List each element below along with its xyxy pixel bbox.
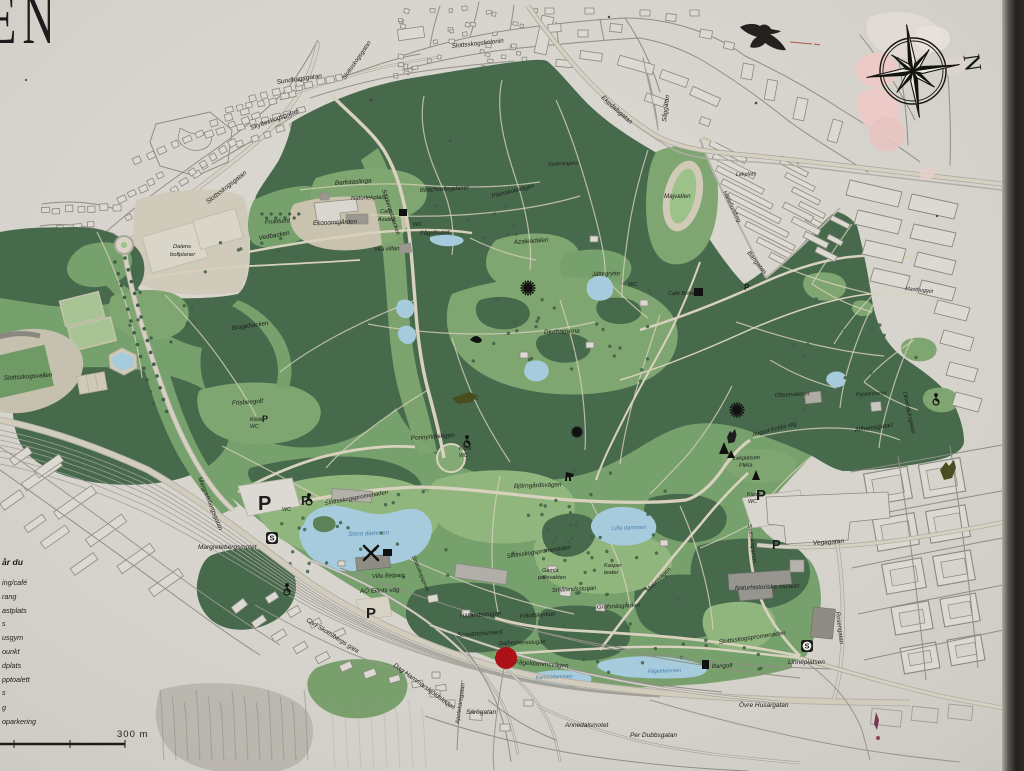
svg-text:WC: WC [628,282,638,288]
svg-text:rang: rang [2,592,16,601]
svg-text:Villa Belparc: Villa Belparc [372,573,405,580]
svg-text:S: S [804,642,809,651]
svg-text:Lilla dammen: Lilla dammen [612,525,647,532]
svg-text:Lekplats: Lekplats [736,171,757,178]
svg-text:astplats: astplats [2,606,27,615]
svg-text:Majvallen: Majvallen [664,193,691,200]
svg-text:Särögatan: Särögatan [466,709,496,716]
svg-text:WC: WC [282,507,291,513]
svg-text:Vita villan: Vita villan [374,246,400,253]
svg-text:s: s [2,619,6,628]
svg-text:Per Dubbsgatan: Per Dubbsgatan [630,732,677,739]
svg-text:Plikta: Plikta [739,463,753,469]
svg-text:S: S [269,534,274,543]
svg-text:bollplaner: bollplaner [170,252,196,258]
svg-text:P: P [262,414,268,424]
svg-text:s: s [2,688,6,697]
svg-text:Karlsrodammen: Karlsrodammen [536,674,573,681]
svg-text:Azalea: Azalea [377,217,395,223]
svg-text:Gamla: Gamla [542,568,558,574]
svg-text:ing/café: ing/café [2,578,27,587]
svg-text:usgym: usgym [2,633,23,642]
svg-text:WC: WC [250,424,259,430]
svg-text:oparkering: oparkering [2,717,36,726]
svg-text:Kasper: Kasper [604,563,623,569]
svg-text:Fågelhuset: Fågelhuset [420,229,450,237]
svg-text:P: P [744,283,750,292]
svg-text:Bangolf: Bangolf [712,663,734,670]
svg-text:WC: WC [459,453,468,459]
svg-text:300 m: 300 m [117,729,148,740]
svg-text:Övre Husargatan: Övre Husargatan [739,701,789,709]
svg-text:Fågeldammen: Fågeldammen [648,667,681,675]
svg-text:AO Elliots väg: AO Elliots väg [359,587,400,595]
svg-text:dplats: dplats [2,661,22,670]
svg-text:P: P [772,537,781,552]
svg-text:EN: EN [0,0,61,59]
svg-text:år du: år du [2,557,24,567]
svg-text:Margretebergsmotet: Margretebergsmotet [198,544,258,551]
svg-text:WC: WC [413,222,423,228]
svg-text:P: P [756,487,766,504]
svg-text:Annedalsmotet: Annedalsmotet [564,722,610,729]
svg-text:Ekonomigården: Ekonomigården [313,217,358,227]
svg-text:g: g [2,703,6,712]
svg-text:Café Bränt: Café Bränt [668,291,695,297]
svg-text:pptoalett: pptoalett [1,675,31,684]
svg-text:Lekplatsen: Lekplatsen [733,455,760,462]
svg-text:Stora dammen: Stora dammen [348,530,390,538]
svg-text:Linnéplatsen: Linnéplatsen [788,659,825,666]
svg-text:Café: Café [380,209,392,215]
svg-text:teater: teater [604,570,619,576]
svg-text:N: N [957,52,985,73]
svg-text:P: P [366,605,376,622]
svg-text:Naturlekplats: Naturlekplats [351,195,386,202]
svg-text:polisvakten: polisvakten [537,575,566,581]
svg-text:Björngårdsvägen: Björngårdsvägen [514,480,562,490]
svg-text:P: P [258,493,271,515]
svg-text:Jättegrytor: Jättegrytor [591,271,622,278]
svg-text:ounkt: ounkt [2,647,21,656]
svg-text:Dalens: Dalens [173,244,191,250]
svg-text:Djurhagarna: Djurhagarna [544,328,580,336]
